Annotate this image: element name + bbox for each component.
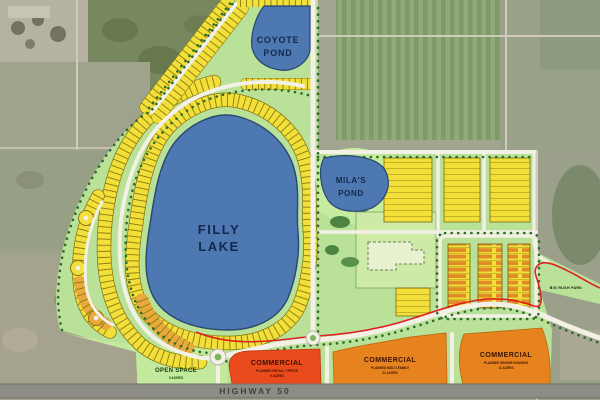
commercial-multifamily-acres: 21 ACRES xyxy=(382,371,397,375)
commercial-senior-title: COMMERCIAL xyxy=(480,352,533,359)
commercial-retail-title: COMMERCIAL xyxy=(251,360,304,367)
open-space-acres: 9 ACRES xyxy=(169,376,184,380)
big-rush-park-label: BIG RUSH PARK xyxy=(550,286,582,290)
commercial-retail-subtitle: PLANNED RETAIL / OFFICE xyxy=(256,369,298,373)
map-canvas: FILLY LAKE COYOTE POND MILA'S POND OPEN … xyxy=(0,0,600,400)
coyote-pond-label: COYOTE xyxy=(257,35,300,45)
milas-pond-label: POND xyxy=(338,189,364,198)
coyote-pond-label: POND xyxy=(263,48,292,58)
highway-label: HIGHWAY 50 xyxy=(219,386,291,396)
commercial-multifamily-subtitle: PLANNED MULTI-FAMILY xyxy=(371,366,410,370)
filly-lake-label: FILLY xyxy=(198,222,240,237)
townhome-block xyxy=(448,244,470,308)
milas-pond-label: MILA'S xyxy=(336,176,366,185)
commercial-senior-subtitle: PLANNED SENIOR HOUSING xyxy=(484,361,529,365)
commercial-senior-acres: 11 ACRES xyxy=(498,366,513,370)
filly-lake-label: LAKE xyxy=(198,239,239,254)
commercial-multifamily-title: COMMERCIAL xyxy=(364,357,417,364)
commercial-retail-acres: 9 ACRES xyxy=(270,374,284,378)
open-space-label: OPEN SPACE xyxy=(155,368,197,374)
townhome-block xyxy=(508,244,530,308)
highway-50 xyxy=(0,384,600,398)
site-plan-map: FILLY LAKE COYOTE POND MILA'S POND OPEN … xyxy=(0,0,600,400)
